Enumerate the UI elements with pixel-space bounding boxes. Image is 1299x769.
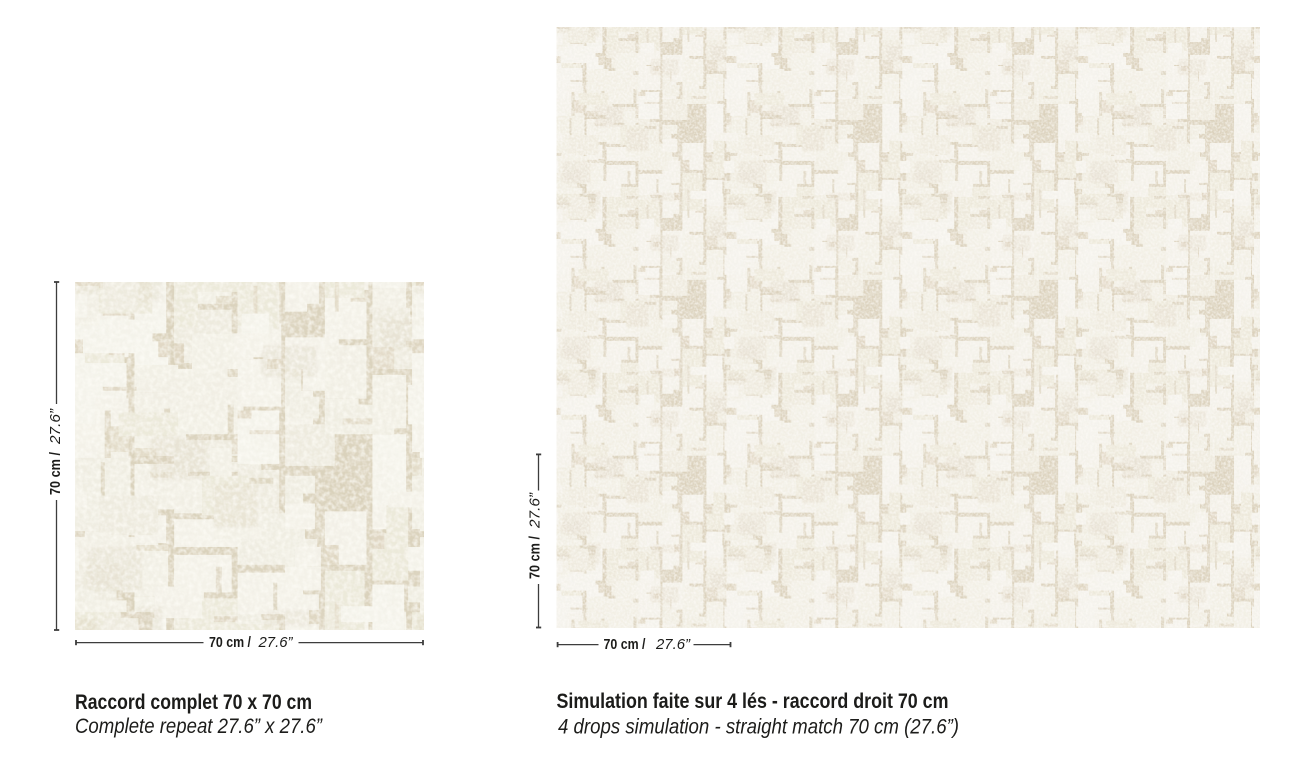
svg-text:27.6”: 27.6”: [258, 634, 294, 651]
svg-text:Complete repeat 27.6” x 27.6”: Complete repeat 27.6” x 27.6”: [75, 715, 323, 738]
svg-text:Raccord complet 70 x 70 cm: Raccord complet 70 x 70 cm: [75, 691, 312, 714]
svg-text:70 cm /: 70 cm /: [209, 634, 252, 651]
svg-text:70 cm /: 70 cm /: [604, 636, 647, 653]
svg-text:70 cm /: 70 cm /: [47, 451, 64, 495]
svg-text:27.6”: 27.6”: [47, 408, 64, 445]
svg-text:Simulation faite sur 4 lés - r: Simulation faite sur 4 lés - raccord dro…: [557, 690, 949, 713]
svg-text:27.6”: 27.6”: [655, 636, 691, 653]
svg-text:27.6”: 27.6”: [527, 492, 544, 529]
svg-text:4 drops simulation - straight: 4 drops simulation - straight match 70 c…: [558, 715, 959, 738]
svg-text:70 cm /: 70 cm /: [527, 535, 544, 579]
